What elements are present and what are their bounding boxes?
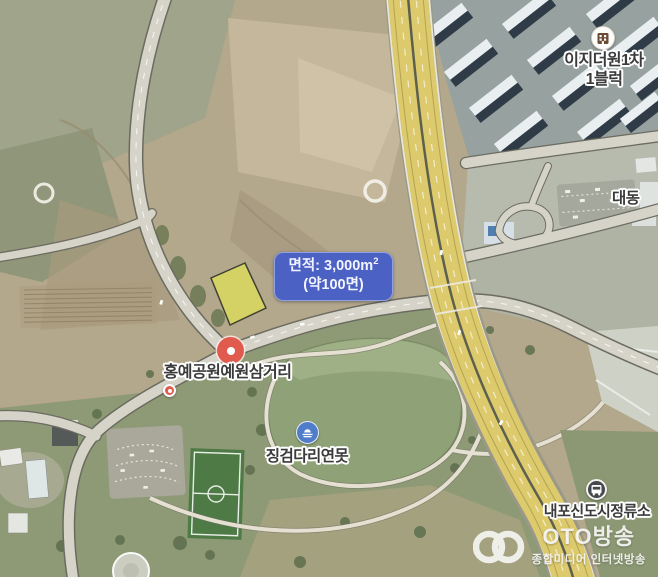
district-label: 대동 [612,190,640,208]
area-info-tooltip: 면적: 3,000m2 (약100면) [274,252,393,301]
area-sup: 2 [373,256,378,267]
area-approx: (약100면) [303,277,364,293]
small-point-marker[interactable] [163,384,176,397]
apartment-label-line2: 1블럭 [536,71,658,90]
bus-icon [590,484,603,496]
area-value: 면적: 3,000m [288,258,373,274]
apartment-complex-label: 이지더원1차 1블럭 [536,52,658,90]
pond-label: 징검다리연못 [234,448,380,466]
bus-stop-poi-marker[interactable] [586,479,607,500]
broadcaster-watermark: OTO방송 종합미디어 인터넷방송 [473,526,647,567]
place-marker-icon[interactable] [217,337,244,364]
building-icon [596,32,610,45]
rings-logo-icon [473,529,525,565]
bus-stop-label: 내포신도시정류소 [524,503,658,521]
apartment-poi-marker[interactable] [591,26,615,50]
marker-center-dot [227,347,235,355]
fountain-icon [301,427,314,439]
watermark-subtitle: 종합미디어 인터넷방송 [532,551,647,567]
small-marker-dot [168,389,172,393]
intersection-label: 홍예공원예원삼거리 [135,364,320,383]
watermark-brand: OTO방송 [542,526,635,548]
satellite-map-view[interactable]: 면적: 3,000m2 (약100면) 이지더원1차 1블럭 대동 홍예공원예원… [0,0,658,577]
pond-poi-marker[interactable] [296,421,319,444]
apartment-label-line1: 이지더원1차 [536,52,658,71]
